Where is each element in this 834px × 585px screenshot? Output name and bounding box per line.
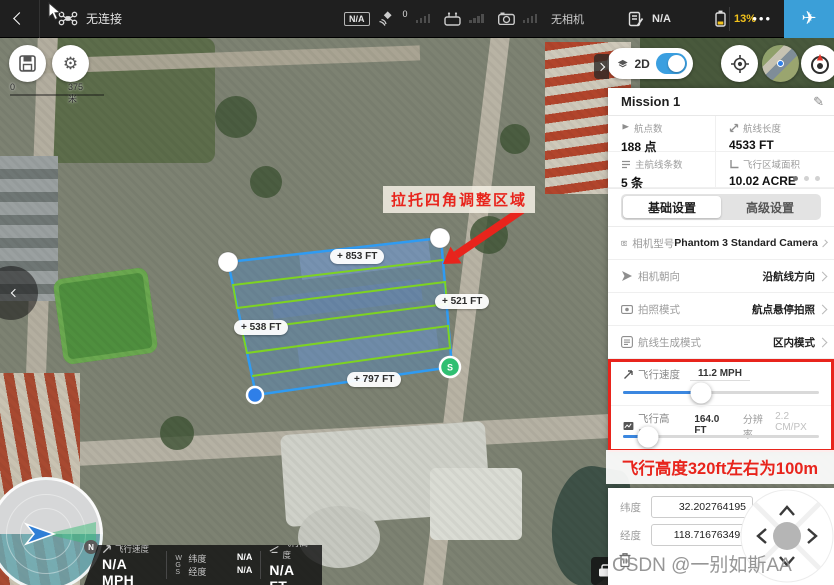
edge-length-top: + 853 FT [330, 249, 384, 264]
speed-icon [623, 369, 634, 380]
setting-camera-heading[interactable]: 相机朝向 沿航线方向 [608, 260, 834, 293]
corner-handle-bottomleft[interactable] [247, 387, 263, 403]
chevron-right-icon [818, 304, 828, 314]
stats-page-dots[interactable] [793, 176, 820, 181]
attitude-indicator: N [0, 477, 103, 585]
stat-mainlines: 主航线条数 5 条 [608, 152, 716, 188]
longitude-label: 经度 [620, 528, 644, 543]
mission-title: Mission 1 [621, 94, 680, 109]
stat-waypoints: 航点数 188 点 [608, 116, 716, 152]
watermark: CSDN @一别如斯AA [612, 550, 827, 577]
more-menu-button[interactable]: ••• [752, 11, 772, 26]
aircraft-connection: 无连接 [58, 10, 122, 27]
speed-slider-row: 飞行速度 11.2 MPH [611, 362, 831, 405]
speed-slider-track[interactable] [623, 391, 819, 394]
signal-bars [416, 14, 431, 23]
route-length-icon [729, 123, 739, 133]
save-icon [19, 55, 36, 72]
minimap-button[interactable] [762, 45, 799, 82]
back-icon [13, 12, 26, 25]
mission-panel: Mission 1 ✎ 航点数 188 点 航线长度 4533 FT 主航线条数… [608, 88, 834, 452]
corner-handle-topleft[interactable] [218, 252, 238, 272]
map-settings-button[interactable]: ⚙ [52, 45, 89, 82]
checklist-value: N/A [652, 13, 671, 25]
connection-status-label: 无连接 [86, 10, 122, 27]
plane-icon: ✈ [801, 8, 816, 29]
drag-corners-hint: 拉托四角调整区域 [383, 186, 535, 213]
telemetry-bar: 飞行速度 N/A MPH WGS 纬度N/A 经度N/A 飞行高度 N/A FT [84, 545, 322, 585]
settings-tabs-wrap: 基础设置 高级设置 [608, 189, 834, 227]
mainlines-icon [621, 159, 631, 169]
locate-button[interactable] [721, 45, 758, 82]
camera-icon [498, 12, 515, 25]
heading-icon [621, 270, 633, 282]
telemetry-lat-value: N/A [237, 552, 253, 565]
stat-route-length: 航线长度 4533 FT [716, 116, 834, 152]
app-screen: 0 375 米 S + 853 FT + 521 FT + 538 FT + 7… [0, 0, 834, 585]
setting-photo-mode[interactable]: 拍照模式 航点悬停拍照 [608, 293, 834, 326]
chevron-left-icon [11, 289, 19, 297]
speed-icon [102, 544, 112, 554]
panel-collapse-button[interactable] [594, 54, 609, 79]
start-point-label: S [447, 363, 453, 373]
route-mode-icon [621, 336, 633, 348]
flight-parameters-highlight: 飞行速度 11.2 MPH 飞行高度 164.0 FT 分辨率 2.2 CM/P… [608, 359, 834, 452]
back-button[interactable] [0, 0, 40, 38]
stat-route-length-value: 4533 FT [729, 138, 834, 152]
telemetry-alt-value: N/A FT [269, 562, 314, 585]
edge-length-left: + 538 FT [234, 320, 288, 335]
altitude-icon [623, 421, 634, 431]
camera-status-label: 无相机 [551, 11, 584, 27]
tab-basic-settings[interactable]: 基础设置 [623, 196, 721, 218]
setting-route-mode[interactable]: 航线生成模式 区内模式 [608, 326, 834, 359]
altitude-plane-icon [269, 544, 279, 554]
map-mode-pill: 2D [607, 48, 693, 79]
checklist-icon [628, 11, 644, 27]
gear-icon: ⚙ [63, 54, 78, 74]
stat-area: 飞行区域面积 10.02 ACRE [716, 152, 834, 188]
area-icon [729, 159, 739, 169]
compass-icon [808, 52, 832, 76]
gps-mode-badge: N/A [344, 12, 370, 26]
altitude-slider-knob[interactable] [638, 426, 659, 447]
layers-icon [617, 58, 628, 70]
speed-slider-knob[interactable] [691, 382, 712, 403]
speed-slider-fill [623, 391, 701, 394]
compass-reset-button[interactable] [801, 45, 834, 82]
wgs-label: WGS [175, 555, 184, 576]
stat-mainlines-value: 5 条 [621, 174, 715, 191]
map-mode-label: 2D [634, 57, 649, 71]
latitude-label: 纬度 [620, 500, 644, 515]
longitude-input[interactable] [651, 524, 753, 546]
satellite-icon [378, 11, 395, 26]
save-mission-button[interactable] [9, 45, 46, 82]
speed-label: 飞行速度 [638, 367, 680, 382]
photo-mode-icon [621, 304, 633, 314]
telemetry-speed-value: N/A MPH [102, 556, 158, 585]
mouse-cursor [48, 2, 62, 22]
speed-value[interactable]: 11.2 MPH [690, 368, 750, 381]
latitude-input[interactable] [651, 496, 753, 518]
telemetry-position: WGS 纬度N/A 经度N/A [167, 552, 260, 578]
mission-header: Mission 1 ✎ [608, 88, 834, 116]
toggle-knob [668, 55, 685, 72]
top-status-bar: 无连接 N/A 0 无相机 N/A 13% ••• ✈ [0, 0, 834, 38]
camera-model-icon [621, 238, 627, 248]
satellite-count: 0 [403, 9, 408, 19]
annotation-arrow [456, 210, 522, 255]
corner-handle-topright[interactable] [430, 228, 450, 248]
chevron-right-icon [820, 239, 828, 247]
altitude-note: 飞行高度320ft左右为100m [606, 450, 834, 484]
altitude-slider-track[interactable] [623, 435, 819, 438]
2d-3d-toggle[interactable] [656, 53, 687, 74]
mission-stats: 航点数 188 点 航线长度 4533 FT 主航线条数 5 条 飞行区域面积 … [608, 116, 834, 189]
minimap-position-dot [777, 60, 784, 67]
setting-camera-model[interactable]: 相机型号 Phantom 3 Standard Camera [608, 227, 834, 260]
crosshair-icon [730, 54, 750, 74]
edit-mission-icon[interactable]: ✎ [813, 94, 824, 110]
topbar-divider [729, 7, 730, 31]
aircraft-heading-icon [0, 480, 100, 585]
altitude-slider-row: 飞行高度 164.0 FT 分辨率 2.2 CM/PX [611, 405, 831, 448]
chevron-right-icon [818, 271, 828, 281]
chevron-right-icon [596, 62, 604, 70]
chevron-right-icon [818, 337, 828, 347]
edge-length-bottom: + 797 FT [347, 372, 401, 387]
signal-bars [469, 14, 484, 23]
signal-bars [523, 14, 538, 23]
waypoint-icon [621, 123, 630, 133]
remote-controller-icon [444, 12, 461, 26]
edge-length-right: + 521 FT [435, 294, 489, 309]
tab-advanced-settings[interactable]: 高级设置 [721, 196, 819, 218]
takeoff-button[interactable]: ✈ [784, 0, 834, 38]
telemetry-lng-value: N/A [237, 565, 253, 578]
dpad-center-button[interactable] [773, 522, 801, 550]
